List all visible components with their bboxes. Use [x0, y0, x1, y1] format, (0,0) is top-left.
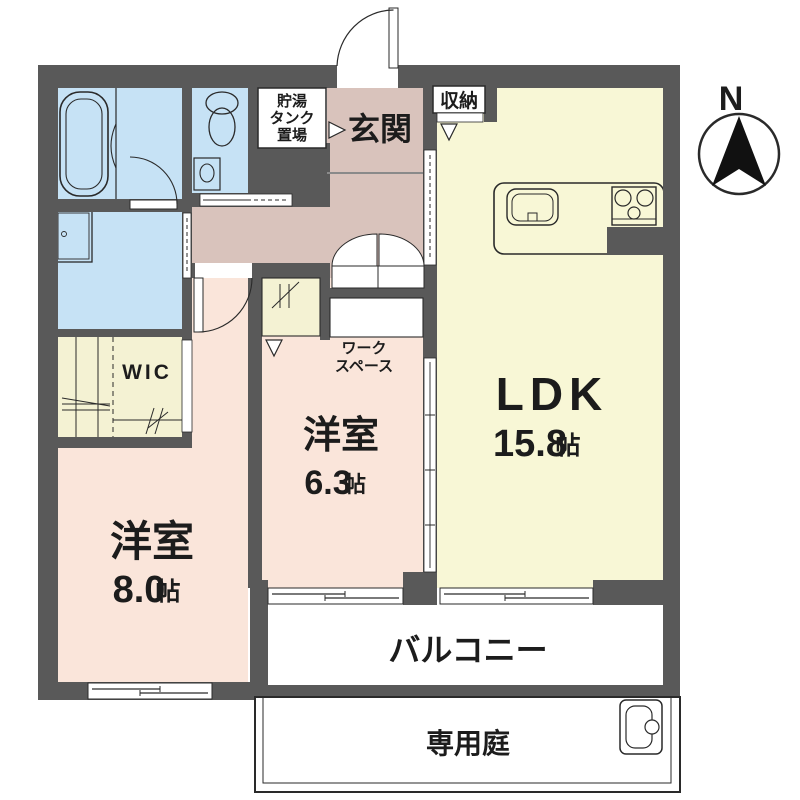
label-tank-line2: タンク — [269, 110, 314, 127]
washroom-sliding-door — [183, 213, 191, 278]
bedroom1-window — [88, 683, 212, 699]
label-workspace-line1: ワーク — [341, 340, 386, 357]
label-bedroom1: 洋室 — [110, 518, 194, 565]
ldk-window — [440, 588, 593, 604]
north-compass-icon — [699, 114, 779, 194]
wall-window-right-block — [593, 580, 663, 605]
bedroom1-area — [58, 448, 248, 682]
workspace-desk — [330, 298, 423, 337]
entrance-door-arc — [337, 10, 394, 66]
wall-kitchen-block — [607, 227, 680, 255]
label-tank-line3: 置場 — [277, 127, 307, 144]
wall-balcony-left — [250, 580, 268, 697]
label-bedroom2: 洋室 — [303, 414, 379, 457]
wall-storage-stub — [484, 88, 497, 122]
floor-plan: 玄関 貯湯 タンク 置場 収納 WIC 洋室 8.0 帖 洋室 6.3 帖 LD… — [0, 0, 800, 800]
entrance-door-leaf — [389, 8, 398, 68]
label-workspace-line2: スペース — [335, 358, 393, 375]
bedroom2-window — [268, 588, 403, 604]
ldk-area — [437, 88, 663, 588]
wic-area — [52, 337, 182, 437]
label-storage: 収納 — [440, 89, 478, 112]
wall-under-shoe-closet — [322, 288, 423, 298]
wall-left — [38, 65, 58, 700]
hall-ldk-sliding-door — [424, 150, 436, 265]
wall-wic-bottom — [38, 437, 192, 448]
label-entrance: 玄関 — [348, 111, 412, 147]
bedroom2-ldk-sliding-partition — [424, 358, 436, 572]
label-tank-line1: 貯湯 — [277, 92, 307, 110]
label-north: N — [719, 80, 744, 118]
label-ldk-unit: 帖 — [555, 432, 580, 460]
washroom-area — [57, 212, 182, 330]
wic-opening — [182, 340, 192, 432]
wall-closet-right — [320, 278, 330, 340]
label-bedroom1-unit: 帖 — [155, 578, 180, 606]
label-garden: 専用庭 — [426, 727, 510, 759]
floor-plan-drawing: 玄関 貯湯 タンク 置場 収納 WIC 洋室 8.0 帖 洋室 6.3 帖 LD… — [0, 0, 800, 800]
bathroom-door-leaf — [130, 200, 177, 209]
wall-right — [663, 65, 680, 698]
bedroom1-door-opening — [195, 263, 252, 278]
wall-bath-toilet — [182, 88, 192, 212]
bedroom1-door-leaf — [194, 278, 203, 332]
garden-sink-icon — [620, 700, 662, 754]
wall-bedroom1-bedroom2 — [248, 278, 262, 588]
wall-window-mid-block — [403, 572, 437, 605]
label-wic: WIC — [122, 361, 172, 384]
toilet-sliding-door — [200, 194, 292, 206]
label-bedroom2-unit: 帖 — [344, 472, 366, 497]
label-ldk: LDK — [496, 368, 609, 420]
wall-wic-top — [38, 329, 192, 337]
bathroom-area — [57, 88, 182, 200]
label-balcony: バルコニー — [388, 632, 547, 668]
wall-wic-stub-bottom — [182, 430, 192, 448]
